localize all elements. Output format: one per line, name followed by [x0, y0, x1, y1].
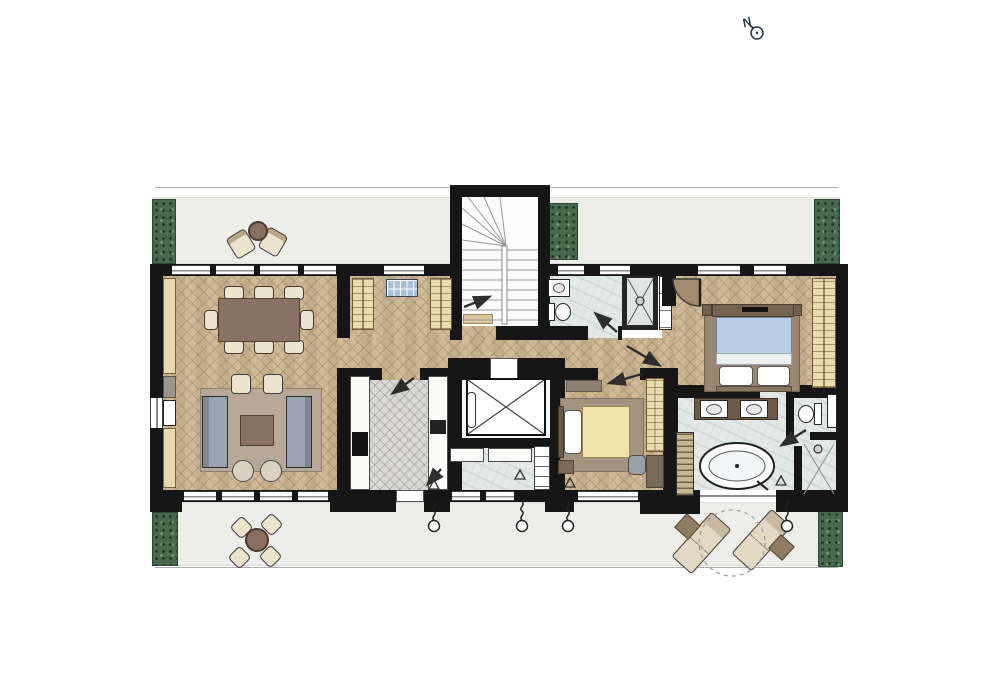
- bathtub-icon: [700, 443, 774, 490]
- elevator-cross-icon: [468, 380, 544, 434]
- door-swing-arc: [673, 279, 700, 306]
- north-arrow-icon: N: [740, 14, 763, 39]
- rain-drain-chains: [429, 502, 793, 532]
- dashed-canopy-circle: [699, 510, 765, 576]
- floor-plan: N: [0, 0, 1000, 700]
- guest-shower-head-icon: [636, 297, 644, 305]
- north-label: N: [740, 14, 754, 30]
- stair-handrail: [502, 246, 507, 324]
- master-shower-head-icon: [814, 445, 822, 453]
- plan-linework: N: [0, 0, 1000, 700]
- stair-treads: [462, 197, 538, 320]
